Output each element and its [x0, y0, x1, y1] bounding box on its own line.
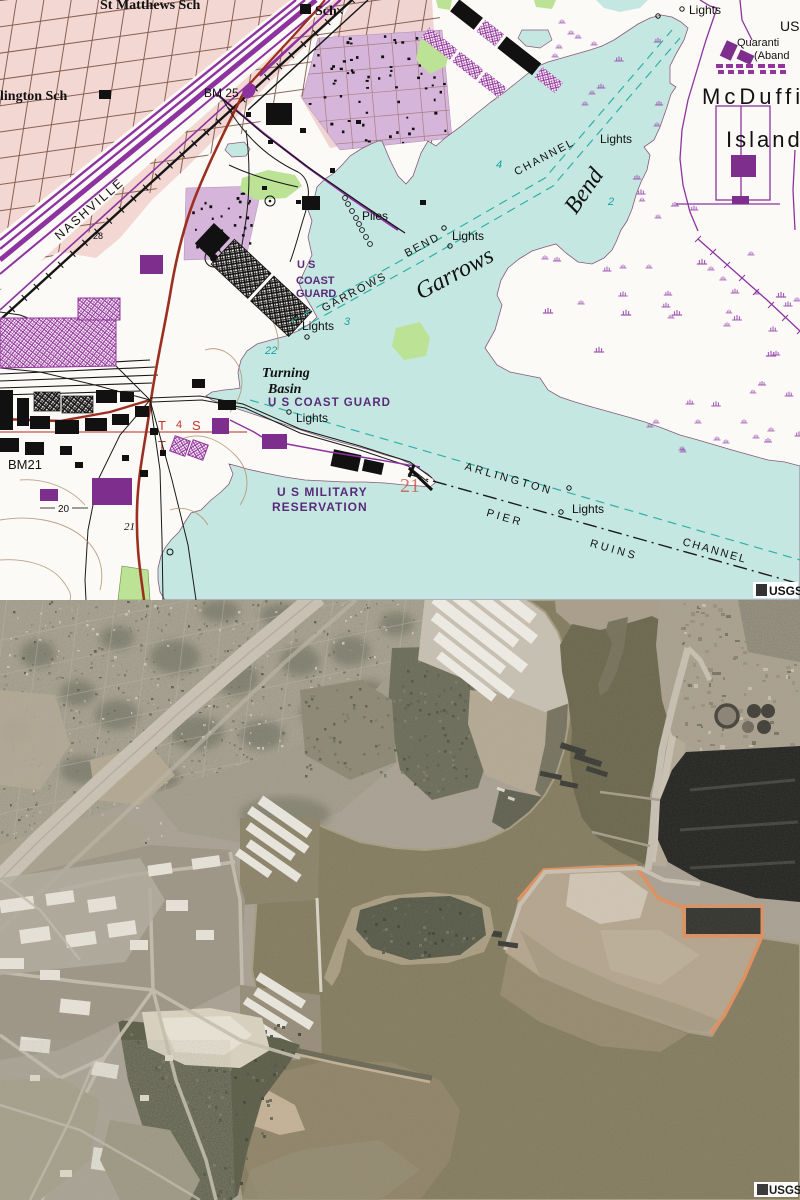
svg-text:Quaranti: Quaranti	[737, 37, 779, 49]
svg-text:Lights: Lights	[302, 319, 334, 333]
svg-text:RESERVATION: RESERVATION	[272, 500, 368, 514]
svg-text:21: 21	[124, 521, 135, 533]
svg-text:US: US	[780, 18, 799, 34]
svg-text:U S COAST GUARD: U S COAST GUARD	[268, 397, 391, 409]
svg-text:(Aband: (Aband	[754, 50, 789, 62]
svg-text:Island: Island	[726, 127, 800, 152]
svg-text:Lights: Lights	[296, 411, 328, 425]
svg-text:Lights: Lights	[600, 132, 632, 146]
svg-text:GUARD: GUARD	[296, 288, 336, 300]
svg-text:lington Sch: lington Sch	[0, 89, 68, 104]
svg-text:Lights: Lights	[452, 229, 484, 243]
svg-text:COAST: COAST	[296, 275, 335, 287]
svg-text:T: T	[158, 418, 166, 433]
svg-text:4: 4	[176, 419, 182, 431]
svg-text:Turning: Turning	[262, 366, 310, 381]
svg-text:2: 2	[607, 196, 614, 208]
svg-text:21: 21	[400, 475, 420, 497]
svg-text:BM21: BM21	[8, 457, 42, 472]
svg-text:Basin: Basin	[267, 382, 302, 397]
svg-text:3: 3	[344, 316, 351, 328]
svg-text:4: 4	[496, 159, 502, 171]
svg-text:USGS: USGS	[769, 584, 800, 598]
svg-text:Sch: Sch	[315, 4, 337, 19]
svg-text:28: 28	[93, 231, 103, 241]
svg-text:U S: U S	[297, 259, 315, 271]
svg-text:McDuffi: McDuffi	[702, 84, 800, 109]
svg-text:20: 20	[58, 504, 70, 515]
svg-text:St Matthews Sch: St Matthews Sch	[100, 0, 201, 13]
svg-text:BM 25: BM 25	[204, 86, 239, 100]
svg-text:Lights: Lights	[572, 502, 604, 516]
svg-text:22: 22	[264, 345, 277, 357]
svg-text:U S MILITARY: U S MILITARY	[277, 485, 368, 499]
svg-text:S: S	[192, 418, 201, 433]
svg-text:Piles: Piles	[362, 209, 388, 223]
svg-text:Lights: Lights	[689, 3, 721, 17]
